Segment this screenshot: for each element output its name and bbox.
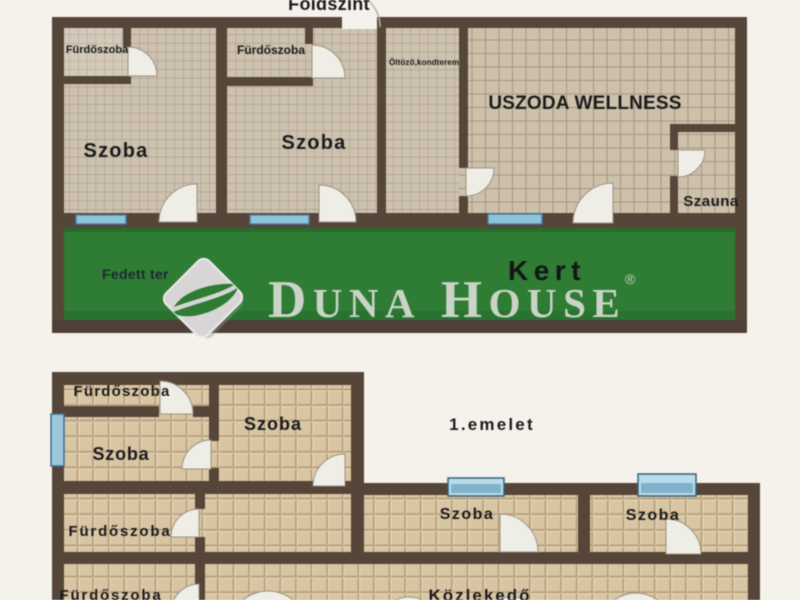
svg-text:Szoba: Szoba [92,444,149,464]
svg-text:Szoba: Szoba [440,506,495,523]
svg-text:Fürdőszoba: Fürdőszoba [66,44,129,56]
svg-text:Szoba: Szoba [244,414,302,434]
svg-text:Fürdőszoba: Fürdőszoba [74,383,171,400]
svg-text:Fürdőszoba: Fürdőszoba [69,523,172,540]
svg-text:Szoba: Szoba [282,132,347,154]
svg-text:USZODA WELLNESS: USZODA WELLNESS [488,93,681,114]
svg-text:Szoba: Szoba [626,507,681,524]
svg-text:Fürdőszoba: Fürdőszoba [237,43,305,57]
svg-text:Szoba: Szoba [84,140,149,162]
svg-text:Fürdőszoba: Fürdőszoba [60,587,163,600]
svg-text:1.emelet: 1.emelet [449,415,535,434]
svg-text:DUNA HOUSE: DUNA HOUSE [268,271,626,329]
svg-text:Földszint: Földszint [288,0,370,14]
svg-text:Szauna: Szauna [683,193,739,210]
svg-text:Öltöző,kondterem: Öltöző,kondterem [389,58,459,67]
svg-text:Közlekedő: Közlekedő [428,586,531,600]
svg-text:®: ® [625,271,636,287]
svg-text:Fedett ter: Fedett ter [102,266,169,282]
